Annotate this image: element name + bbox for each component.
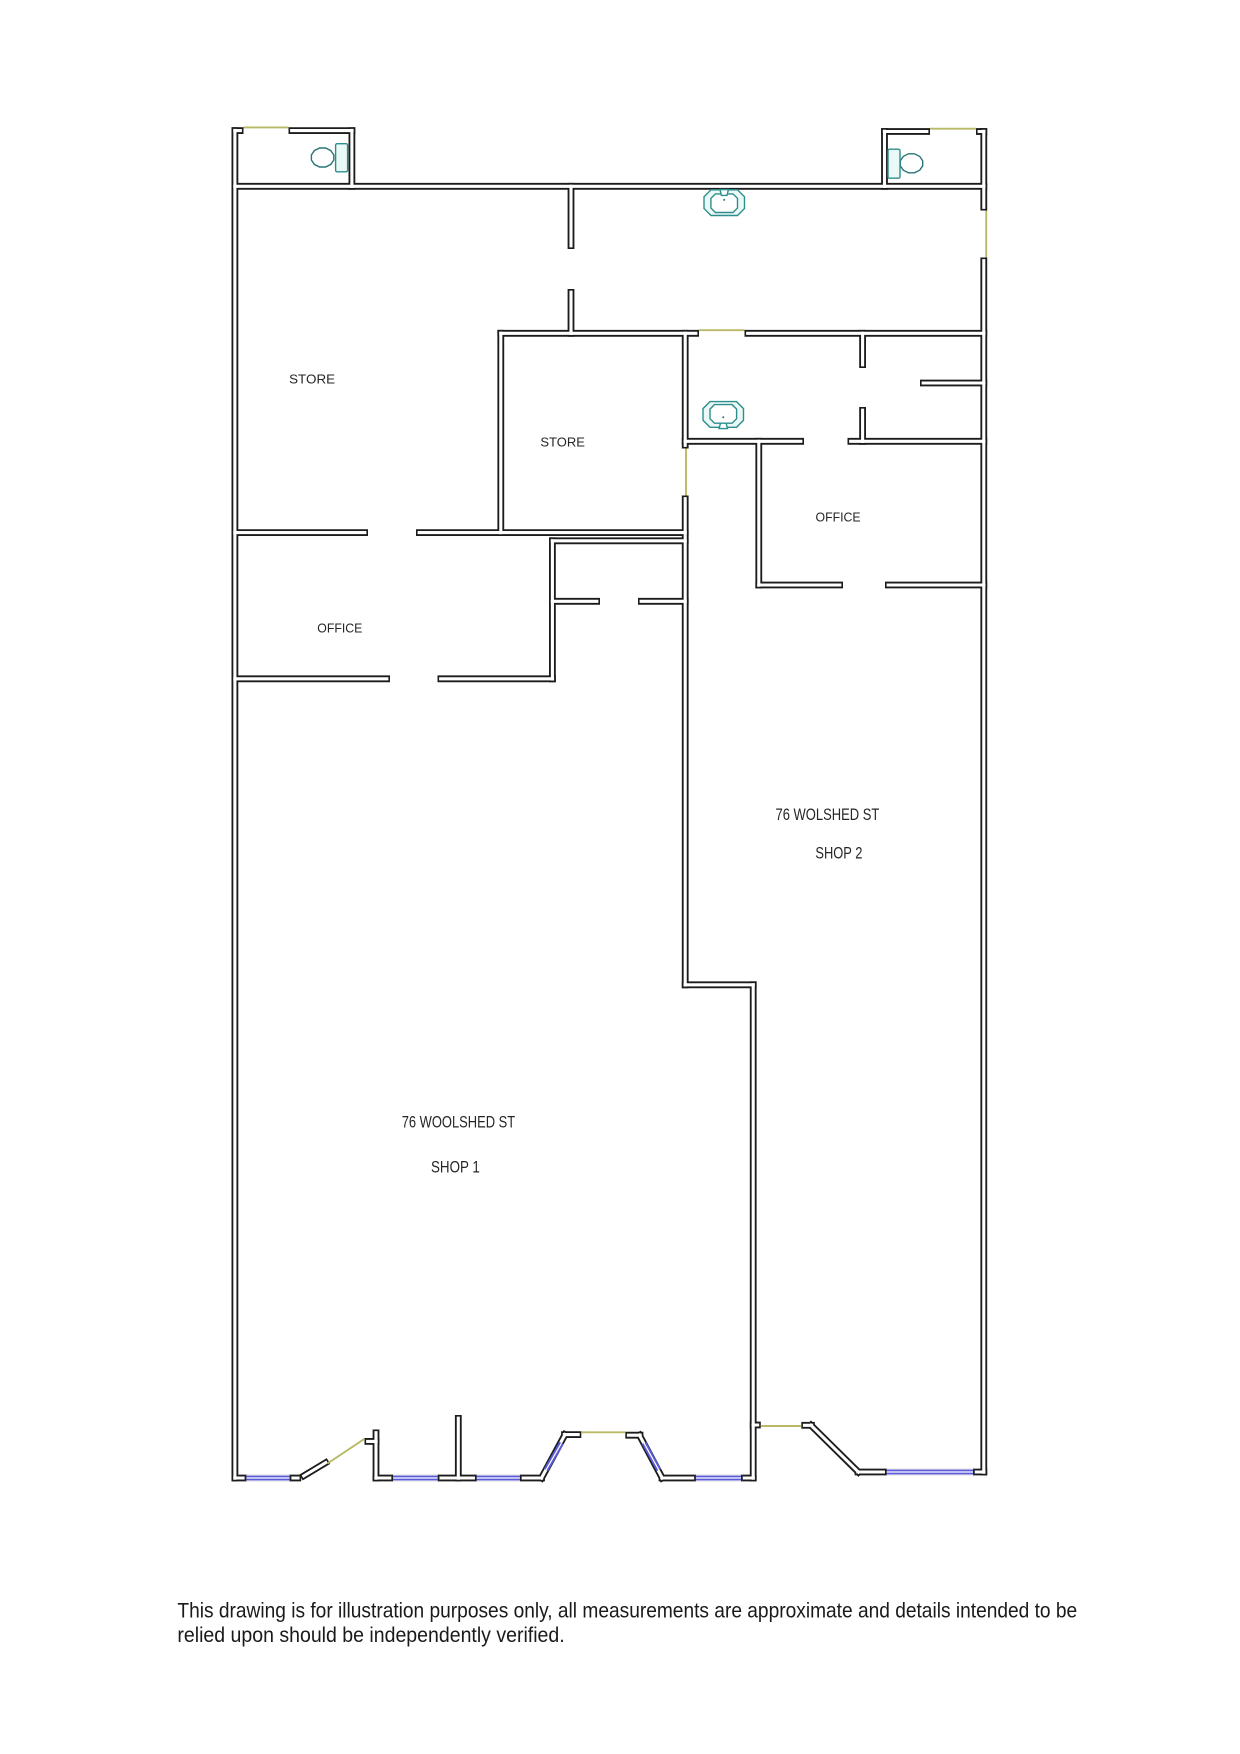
svg-text:STORE: STORE [540,436,585,450]
svg-text:76 WOOLSHED ST: 76 WOOLSHED ST [402,1112,516,1131]
svg-text:76 WOLSHED ST: 76 WOLSHED ST [776,805,880,824]
svg-text:OFFICE: OFFICE [317,622,362,636]
svg-text:SHOP 1: SHOP 1 [431,1158,480,1177]
svg-text:SHOP 2: SHOP 2 [815,843,862,862]
svg-text:relied upon should be independ: relied upon should be independently veri… [177,1624,564,1647]
svg-text:OFFICE: OFFICE [816,510,861,524]
svg-text:STORE: STORE [289,373,335,387]
svg-text:This drawing is for illustrati: This drawing is for illustration purpose… [177,1600,1077,1623]
